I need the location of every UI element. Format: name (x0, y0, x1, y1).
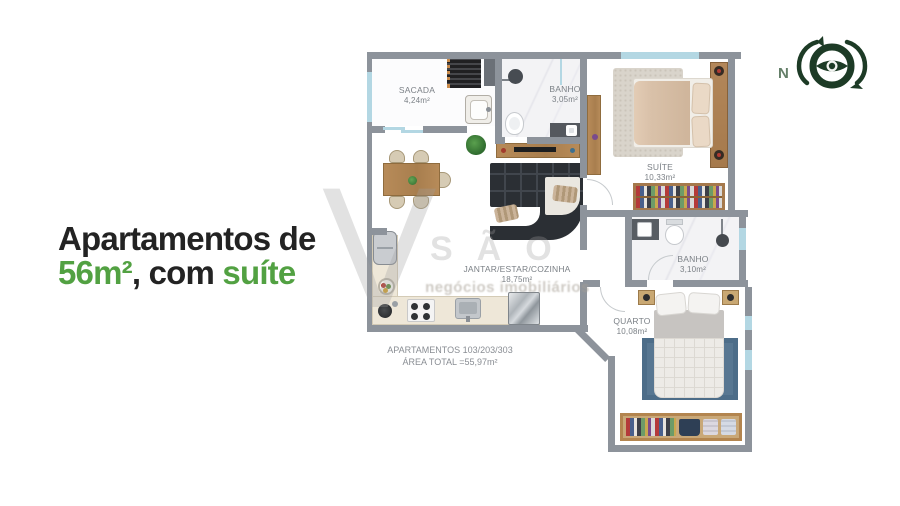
room-area: 10,33m² (628, 173, 692, 183)
room-label-quarto: QUARTO 10,08m² (607, 316, 657, 337)
north-label: N (778, 65, 789, 82)
plan-caption: APARTAMENTOS 103/203/303 ÁREA TOTAL =55,… (365, 344, 535, 368)
floor-plan: SACADA 4,24m² BANHO 3,05m² SUÍTE 10,33m²… (365, 38, 760, 458)
wall (527, 137, 587, 144)
shower-head-icon (508, 69, 523, 84)
wall (495, 137, 505, 144)
nightstand-lamp-icon (714, 150, 724, 160)
wall (495, 59, 502, 144)
headline-area-green: 56m² (58, 254, 132, 291)
folded-stack (703, 419, 718, 435)
wall (580, 52, 587, 178)
nightstand-lamp-icon (714, 66, 724, 76)
watermark-tagline: negócios imobiliários (400, 279, 615, 296)
north-compass-logo: N (770, 30, 882, 102)
wall (608, 445, 752, 452)
wall (367, 325, 588, 332)
wall (608, 356, 615, 452)
nightstand-icon (638, 290, 655, 305)
window (745, 316, 752, 330)
plant-icon (466, 135, 486, 155)
room-name: SUÍTE (628, 162, 692, 173)
compass-eye-pupil (829, 63, 835, 69)
room-name: BANHO (665, 254, 721, 265)
burner (411, 303, 418, 310)
vanity-basin-inner (569, 128, 574, 133)
fridge-divider (377, 247, 393, 249)
window (745, 350, 752, 370)
quarto-bed (654, 291, 724, 398)
dining-chair (413, 196, 429, 209)
quarto-quilt (654, 338, 724, 398)
dining-chair (389, 196, 405, 209)
headline-mid: , com (132, 254, 223, 291)
wall (728, 52, 735, 217)
room-name: JANTAR/ESTAR/COZINHA (457, 264, 577, 275)
cooktop-icon (407, 299, 435, 322)
wardrobe-clothes (626, 418, 676, 436)
fruit (381, 283, 386, 288)
kettle-icon (378, 304, 392, 318)
room-label-banho1: BANHO 3,05m² (539, 84, 591, 105)
wall (423, 126, 467, 133)
room-name: BANHO (539, 84, 591, 95)
vanity-sink-icon (632, 219, 659, 240)
shower-arm (721, 219, 723, 235)
suite-wardrobe-clothes (633, 183, 725, 211)
toilet-bowl (509, 117, 520, 130)
marketing-floorplan-page: Apartamentos de 56m², com suíte N (0, 0, 900, 506)
laundry-tub-icon (465, 95, 492, 124)
lamp-red-dot (717, 153, 721, 157)
sink-faucet (466, 316, 470, 322)
suite-bed (633, 78, 713, 148)
burner (411, 313, 418, 320)
ac-condenser-icon (447, 58, 481, 88)
wall (673, 280, 748, 287)
fruit-bowl-icon (378, 278, 395, 295)
wall (580, 210, 748, 217)
shower-head-icon (716, 234, 729, 247)
compass-arrow-right-head (850, 83, 863, 89)
suite-duvet (634, 81, 690, 145)
kettle-lid (392, 301, 398, 307)
toilet-icon (505, 112, 524, 135)
sofa-cushion-striped (552, 185, 578, 204)
suite-side-cabinet (587, 95, 601, 175)
room-name: SACADA (387, 85, 447, 96)
fridge-icon (373, 231, 397, 265)
room-area: 4,24m² (387, 96, 447, 106)
room-area: 10,08m² (607, 327, 657, 337)
window (367, 72, 372, 122)
lamp-red-dot (717, 69, 721, 73)
quarto-wardrobe (620, 413, 742, 441)
shower-glass (739, 228, 746, 250)
window (621, 52, 699, 59)
table-centerpiece-plant-icon (408, 176, 417, 185)
compass-arrow-left-head (817, 36, 824, 47)
utility-panel-icon (484, 59, 495, 86)
dining-chair (439, 172, 451, 188)
headline: Apartamentos de 56m², com suíte (58, 222, 378, 290)
toilet-icon (665, 225, 684, 245)
vanity-sink-icon (550, 123, 580, 138)
wall-diagonal (574, 326, 610, 362)
decor-blue (570, 148, 575, 153)
quarto-pillow (687, 292, 720, 315)
wall (372, 228, 387, 235)
quarto-pillow (655, 291, 687, 316)
decor-purple (592, 134, 598, 140)
wardrobe-rail (636, 196, 722, 198)
kitchen-sink-icon (455, 298, 481, 319)
burner (423, 313, 430, 320)
room-name: QUARTO (607, 316, 657, 327)
dining-chair (389, 150, 405, 163)
shower-glass (560, 59, 562, 85)
room-label-banho2: BANHO 3,10m² (665, 254, 721, 275)
decor-red (501, 148, 506, 153)
room-area: 3,10m² (665, 265, 721, 275)
door-swing-arc (587, 179, 613, 205)
tv-icon (514, 147, 556, 152)
nightstand-lamp-icon (643, 294, 650, 301)
laundry-tub-faucet (486, 107, 491, 112)
room-area: 3,05m² (539, 95, 591, 105)
stainless-appliance-icon (508, 292, 540, 325)
tv-sideboard (496, 143, 580, 158)
suite-pillow (691, 116, 711, 148)
mirror-icon (637, 222, 652, 237)
jeans-stack (679, 419, 700, 436)
vanity-basin (566, 125, 577, 136)
headline-line2: 56m², com suíte (58, 256, 378, 290)
caption-total-area: ÁREA TOTAL =55,97m² (365, 356, 535, 368)
sliding-door-glass (401, 130, 423, 133)
nightstand-icon (722, 290, 739, 305)
caption-units: APARTAMENTOS 103/203/303 (365, 344, 535, 356)
folded-stack (721, 419, 736, 435)
burner (423, 303, 430, 310)
suite-pillow (691, 83, 711, 115)
dining-chair (413, 150, 429, 163)
wall (625, 280, 647, 287)
dining-table (383, 163, 440, 196)
nightstand-lamp-icon (727, 294, 734, 301)
wall (625, 217, 632, 287)
room-label-suite: SUÍTE 10,33m² (628, 162, 692, 183)
headline-suite-green: suíte (222, 254, 295, 291)
sink-basin (459, 302, 477, 314)
headline-line1: Apartamentos de (58, 222, 378, 256)
room-label-sacada: SACADA 4,24m² (387, 85, 447, 106)
